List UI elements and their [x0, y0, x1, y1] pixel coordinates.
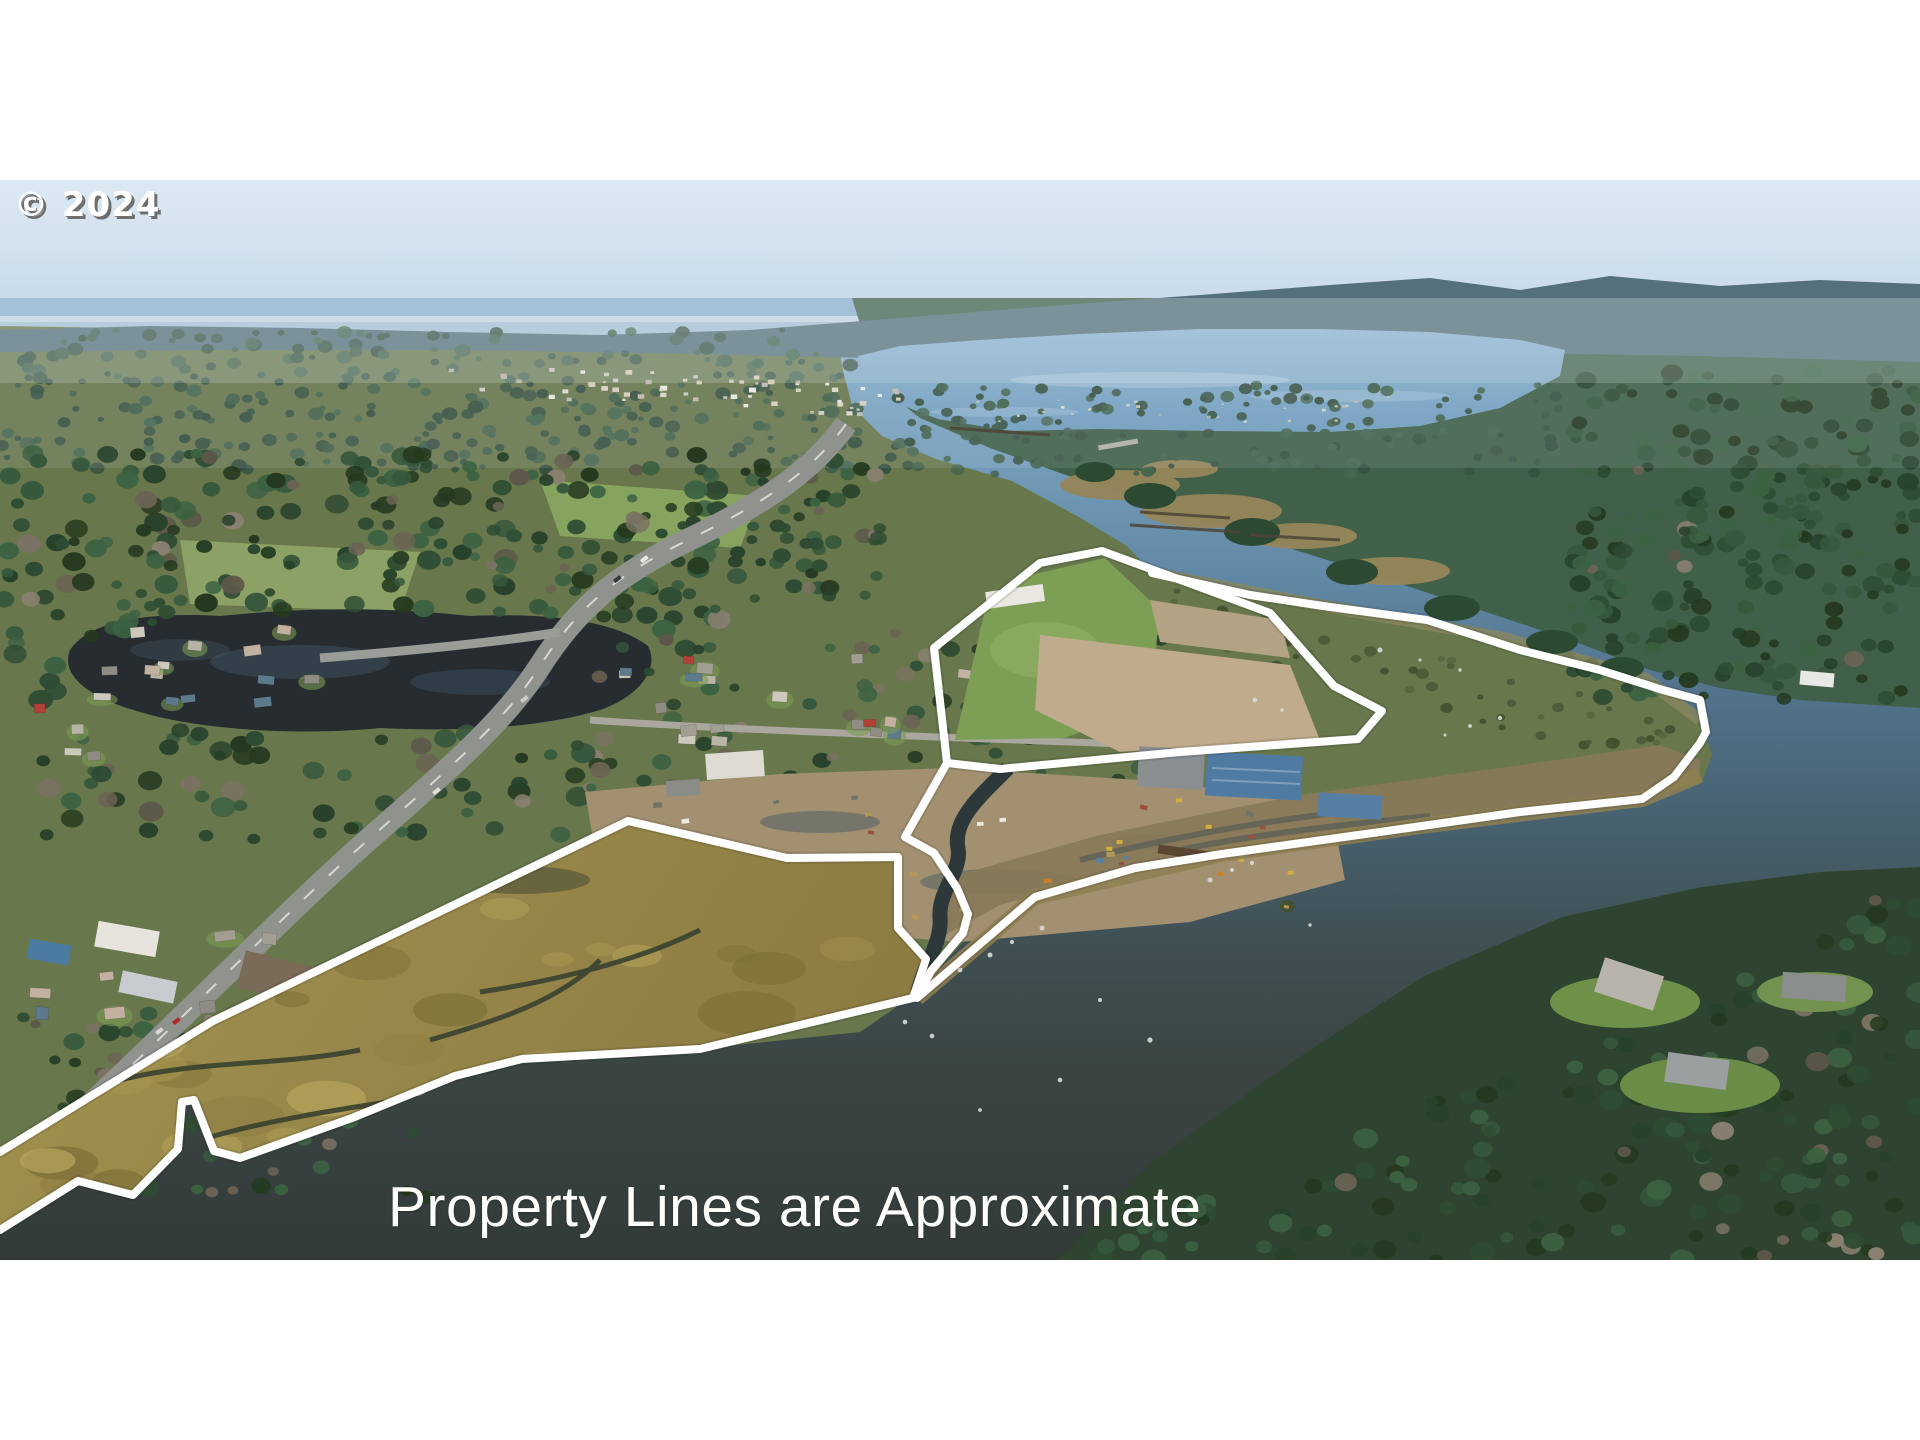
pond-reflection [130, 639, 230, 661]
screenshot-root: © 2024 Property Lines are Approximate [0, 0, 1920, 1440]
copyright-watermark: © 2024 [14, 185, 160, 225]
aerial-photo-scene [0, 180, 1920, 1260]
letterbox-top [0, 0, 1920, 180]
caption-property-lines: Property Lines are Approximate [388, 1174, 1201, 1240]
haze [0, 298, 1920, 383]
white-building [705, 750, 765, 780]
aerial-photo: © 2024 Property Lines are Approximate [0, 180, 1920, 1260]
bluff-house [1781, 972, 1847, 1002]
trailer [1799, 671, 1834, 688]
gray-shed [665, 779, 700, 797]
blue-warehouse [1205, 752, 1303, 801]
letterbox-bottom [0, 1260, 1920, 1440]
blue-shed [1317, 792, 1382, 819]
